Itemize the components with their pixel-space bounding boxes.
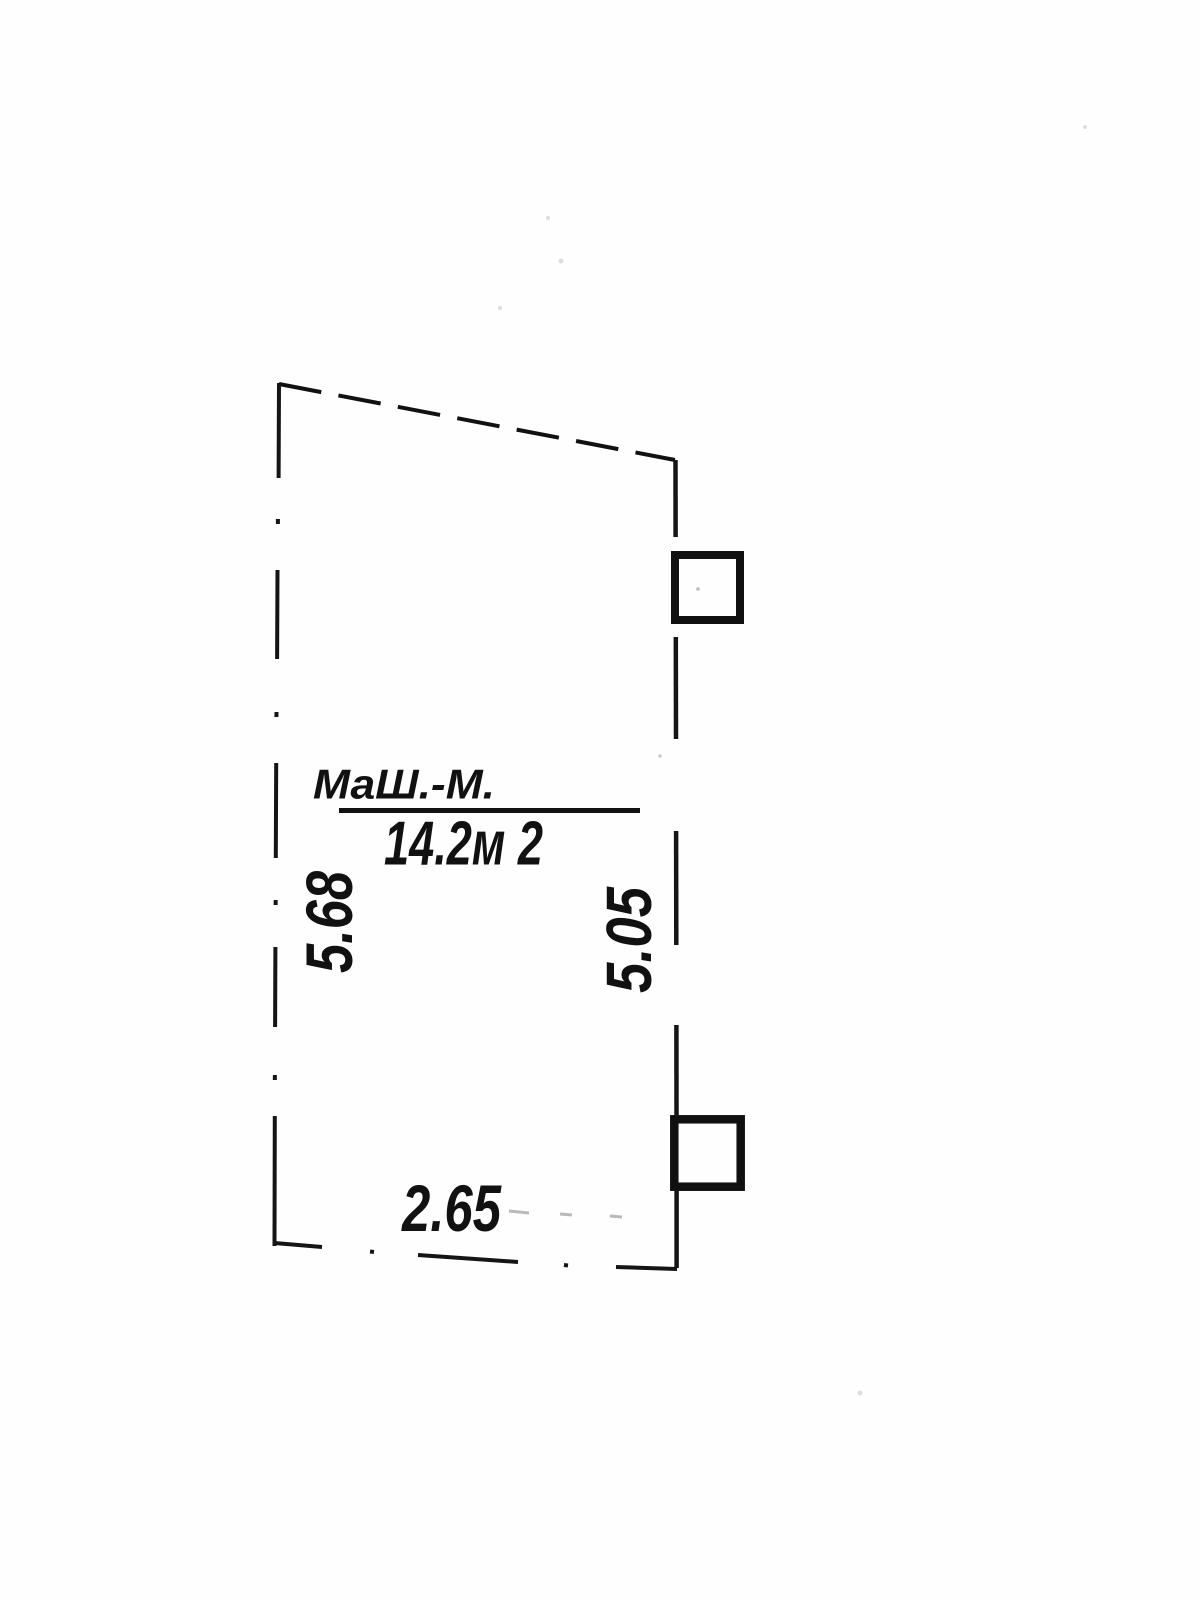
- svg-text:МаШ.-М.: МаШ.-М.: [313, 761, 495, 808]
- svg-text:5.05: 5.05: [593, 886, 665, 993]
- svg-text:14.2м 2: 14.2м 2: [384, 810, 543, 879]
- svg-text:2.65: 2.65: [400, 1171, 502, 1245]
- svg-text:5.68: 5.68: [292, 871, 366, 973]
